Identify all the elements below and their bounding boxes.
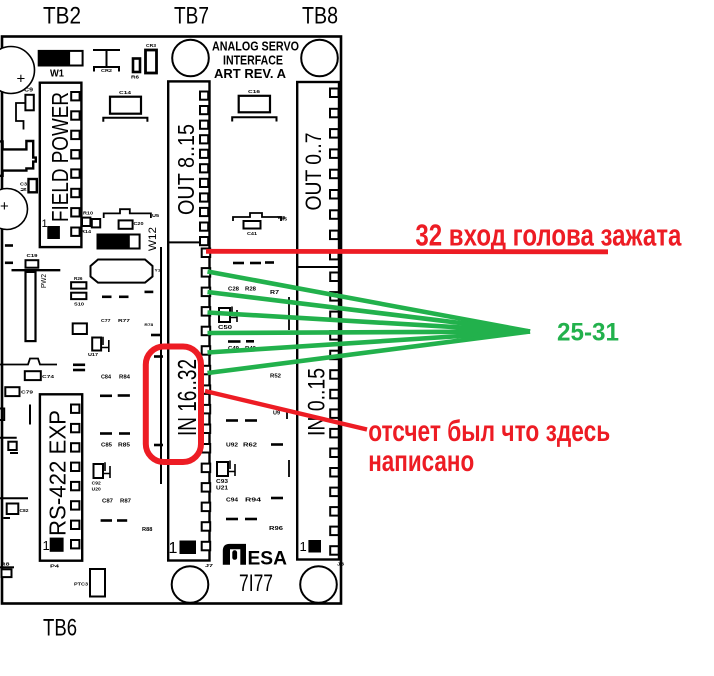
svg-text:25-31: 25-31 <box>557 319 619 347</box>
svg-text:C28: C28 <box>228 287 239 293</box>
svg-text:IN 16..32: IN 16..32 <box>174 359 202 436</box>
svg-text:U20: U20 <box>92 487 102 492</box>
svg-text:C41: C41 <box>247 231 258 236</box>
svg-text:1: 1 <box>43 538 50 553</box>
svg-text:TB2: TB2 <box>43 3 81 30</box>
svg-text:J8: J8 <box>337 562 345 567</box>
svg-text:R8: R8 <box>1 562 11 567</box>
svg-text:W1: W1 <box>50 69 64 80</box>
svg-text:R10: R10 <box>83 211 94 216</box>
svg-text:W6: W6 <box>278 215 287 220</box>
svg-text:U21: U21 <box>216 486 228 492</box>
svg-text:1: 1 <box>300 539 307 554</box>
svg-text:TB8: TB8 <box>302 3 338 30</box>
svg-text:C82: C82 <box>20 508 30 513</box>
svg-text:ANALOG SERVO: ANALOG SERVO <box>212 40 299 54</box>
svg-text:C20: C20 <box>134 221 145 226</box>
svg-text:R84: R84 <box>119 375 130 381</box>
svg-text:R88: R88 <box>142 527 153 533</box>
svg-text:FIELD POWER: FIELD POWER <box>47 92 73 222</box>
svg-text:RS-422 EXP: RS-422 EXP <box>45 410 71 536</box>
svg-text:OUT 8..15: OUT 8..15 <box>173 124 199 215</box>
svg-text:C14: C14 <box>119 90 132 95</box>
svg-text:CR2: CR2 <box>101 68 113 73</box>
svg-text:C50: C50 <box>218 325 232 331</box>
svg-text:C3: C3 <box>20 182 28 187</box>
svg-text:+: + <box>0 198 9 215</box>
svg-text:C93: C93 <box>216 479 228 485</box>
svg-text:S10: S10 <box>74 302 85 307</box>
svg-text:PW2: PW2 <box>39 274 48 288</box>
svg-text:C74: C74 <box>42 374 55 379</box>
svg-text:1: 1 <box>169 540 178 557</box>
svg-text:R52: R52 <box>270 374 281 380</box>
svg-text:W12: W12 <box>147 227 159 251</box>
svg-text:R78: R78 <box>144 322 154 327</box>
svg-text:C92: C92 <box>92 481 102 486</box>
svg-text:R85: R85 <box>118 443 130 449</box>
svg-text:R7: R7 <box>270 290 279 296</box>
svg-text:TB7: TB7 <box>174 3 209 30</box>
svg-text:INTERFACE: INTERFACE <box>223 54 283 68</box>
svg-text:отсчет был что здесь: отсчет был что здесь <box>368 415 610 448</box>
svg-text:C84: C84 <box>101 375 111 381</box>
svg-text:R26: R26 <box>74 276 83 281</box>
svg-text:OUT 0..7: OUT 0..7 <box>301 133 326 211</box>
svg-text:7I77: 7I77 <box>239 570 273 597</box>
svg-text:U92: U92 <box>226 443 238 449</box>
svg-text:R6: R6 <box>131 75 140 80</box>
svg-text:P4: P4 <box>50 564 60 569</box>
svg-text:U9: U9 <box>273 411 280 417</box>
svg-text:R77: R77 <box>118 318 130 324</box>
svg-text:C77: C77 <box>101 318 111 324</box>
svg-text:U5: U5 <box>152 213 160 218</box>
svg-text:PTC3: PTC3 <box>74 582 89 587</box>
svg-text:IN 0..15: IN 0..15 <box>304 368 331 436</box>
svg-text:32 вход голова зажата: 32 вход голова зажата <box>415 217 682 252</box>
svg-text:C16: C16 <box>248 89 261 94</box>
svg-text:C87: C87 <box>102 499 113 505</box>
svg-text:TB6: TB6 <box>43 615 77 642</box>
svg-text:R94: R94 <box>245 498 261 504</box>
svg-text:R96: R96 <box>269 526 283 532</box>
svg-text:ESA: ESA <box>248 548 288 570</box>
svg-text:C85: C85 <box>101 443 112 449</box>
svg-text:C94: C94 <box>226 498 238 504</box>
svg-text:U17: U17 <box>88 352 99 357</box>
svg-text:R62: R62 <box>243 443 257 449</box>
svg-text:C9: C9 <box>24 88 33 94</box>
svg-text:C79: C79 <box>21 390 34 395</box>
svg-text:R28: R28 <box>245 287 256 293</box>
svg-text:J7: J7 <box>205 563 214 568</box>
svg-text:написано: написано <box>368 445 474 478</box>
svg-text:R87: R87 <box>120 499 131 505</box>
svg-text:R14: R14 <box>81 229 92 234</box>
svg-text:+: + <box>17 71 26 88</box>
svg-text:ART REV. A: ART REV. A <box>214 67 286 81</box>
svg-text:C19: C19 <box>27 253 39 258</box>
svg-text:CR3: CR3 <box>146 43 157 48</box>
